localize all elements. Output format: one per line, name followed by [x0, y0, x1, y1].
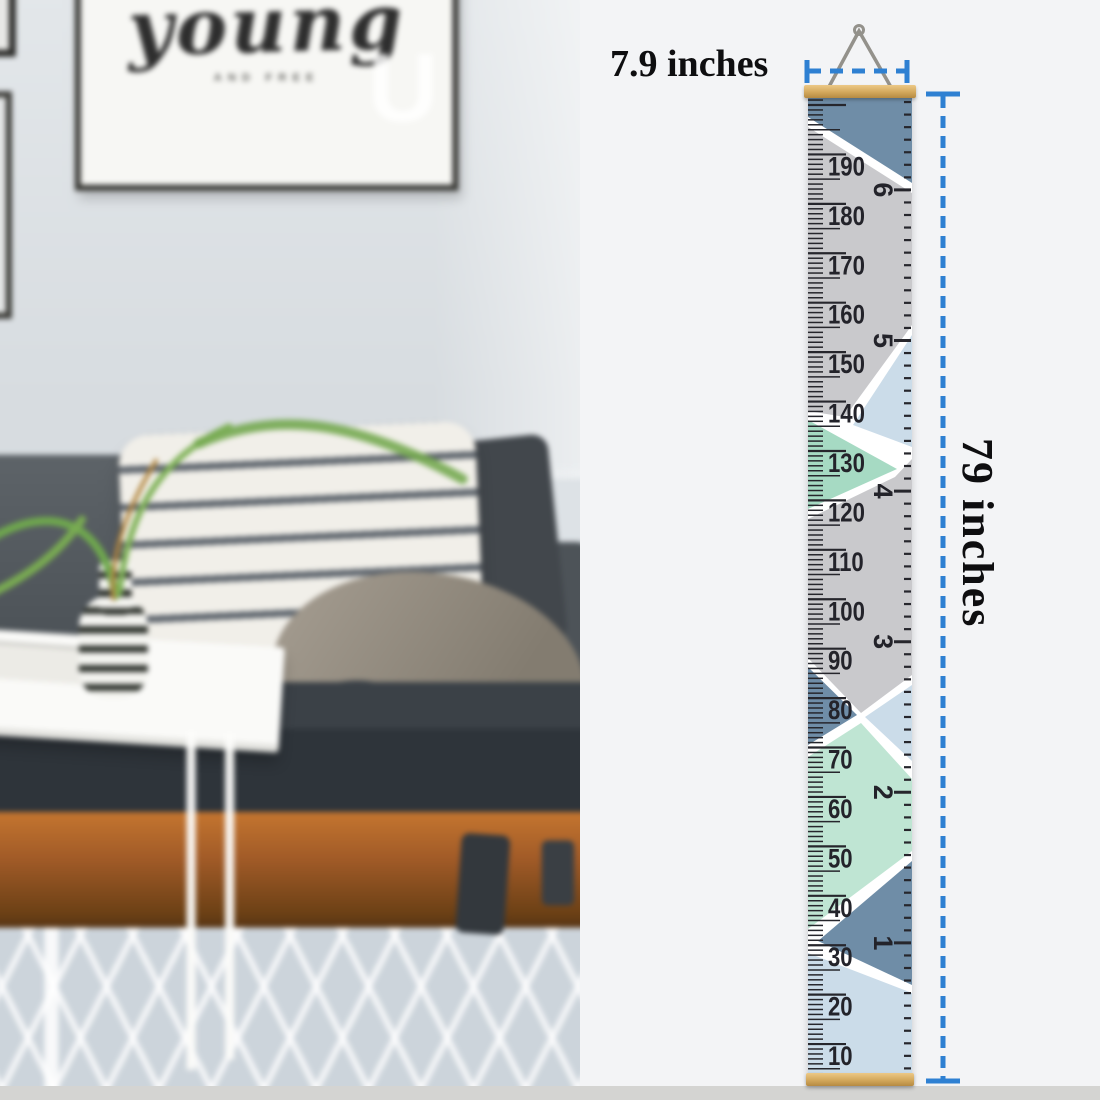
svg-text:130: 130 [828, 449, 865, 479]
svg-text:6: 6 [868, 182, 898, 197]
svg-text:80: 80 [828, 696, 853, 726]
svg-text:120: 120 [828, 498, 865, 528]
width-dimension-line [807, 60, 907, 83]
svg-text:140: 140 [828, 400, 865, 430]
svg-text:170: 170 [828, 251, 865, 281]
growth-chart-ruler-svg: 1020304050607080901001101201301401501601… [808, 95, 912, 1085]
product-image: young AND FREE U [0, 0, 1100, 1100]
svg-text:160: 160 [828, 301, 865, 331]
svg-text:50: 50 [828, 844, 853, 874]
area-rug [0, 928, 580, 1086]
svg-text:2: 2 [868, 785, 898, 800]
svg-text:70: 70 [828, 746, 853, 776]
height-dimension-label: 79 inches [952, 438, 1003, 628]
wood-hanger-bar-top [804, 85, 916, 98]
svg-text:5: 5 [868, 333, 898, 348]
sofa-leg [455, 833, 511, 936]
svg-text:60: 60 [828, 795, 853, 825]
width-dimension-label: 7.9 inches [610, 42, 768, 86]
rug-stripe [44, 928, 58, 1086]
coffee-table-leg-back [225, 733, 234, 1060]
svg-text:40: 40 [828, 894, 853, 924]
svg-text:20: 20 [828, 993, 853, 1023]
svg-text:10: 10 [828, 1042, 853, 1072]
coffee-table-leg-front [186, 731, 195, 1070]
bottom-floor-strip [0, 1086, 1100, 1100]
svg-text:150: 150 [828, 350, 865, 380]
wood-hanger-bar-bottom [806, 1073, 914, 1086]
svg-text:4: 4 [868, 484, 898, 499]
svg-text:190: 190 [828, 152, 865, 182]
growth-chart-ruler: 1020304050607080901001101201301401501601… [808, 95, 912, 1085]
poster-watermark: U [368, 32, 438, 144]
svg-text:1: 1 [868, 935, 898, 950]
plant-stems [0, 367, 580, 702]
framed-poster: young AND FREE U [75, 0, 459, 191]
svg-text:180: 180 [828, 202, 865, 232]
picture-frame-corner [0, 0, 16, 57]
sofa-leg-small [542, 840, 574, 905]
lifestyle-photo-content: young AND FREE U [0, 0, 580, 1086]
svg-text:30: 30 [828, 943, 853, 973]
picture-frame-tall [0, 91, 12, 318]
lifestyle-photo: young AND FREE U [0, 0, 580, 1086]
svg-text:3: 3 [868, 634, 898, 649]
svg-text:100: 100 [828, 597, 865, 627]
svg-text:110: 110 [828, 548, 864, 578]
sofa-shadow [0, 729, 580, 816]
svg-text:90: 90 [828, 647, 853, 677]
